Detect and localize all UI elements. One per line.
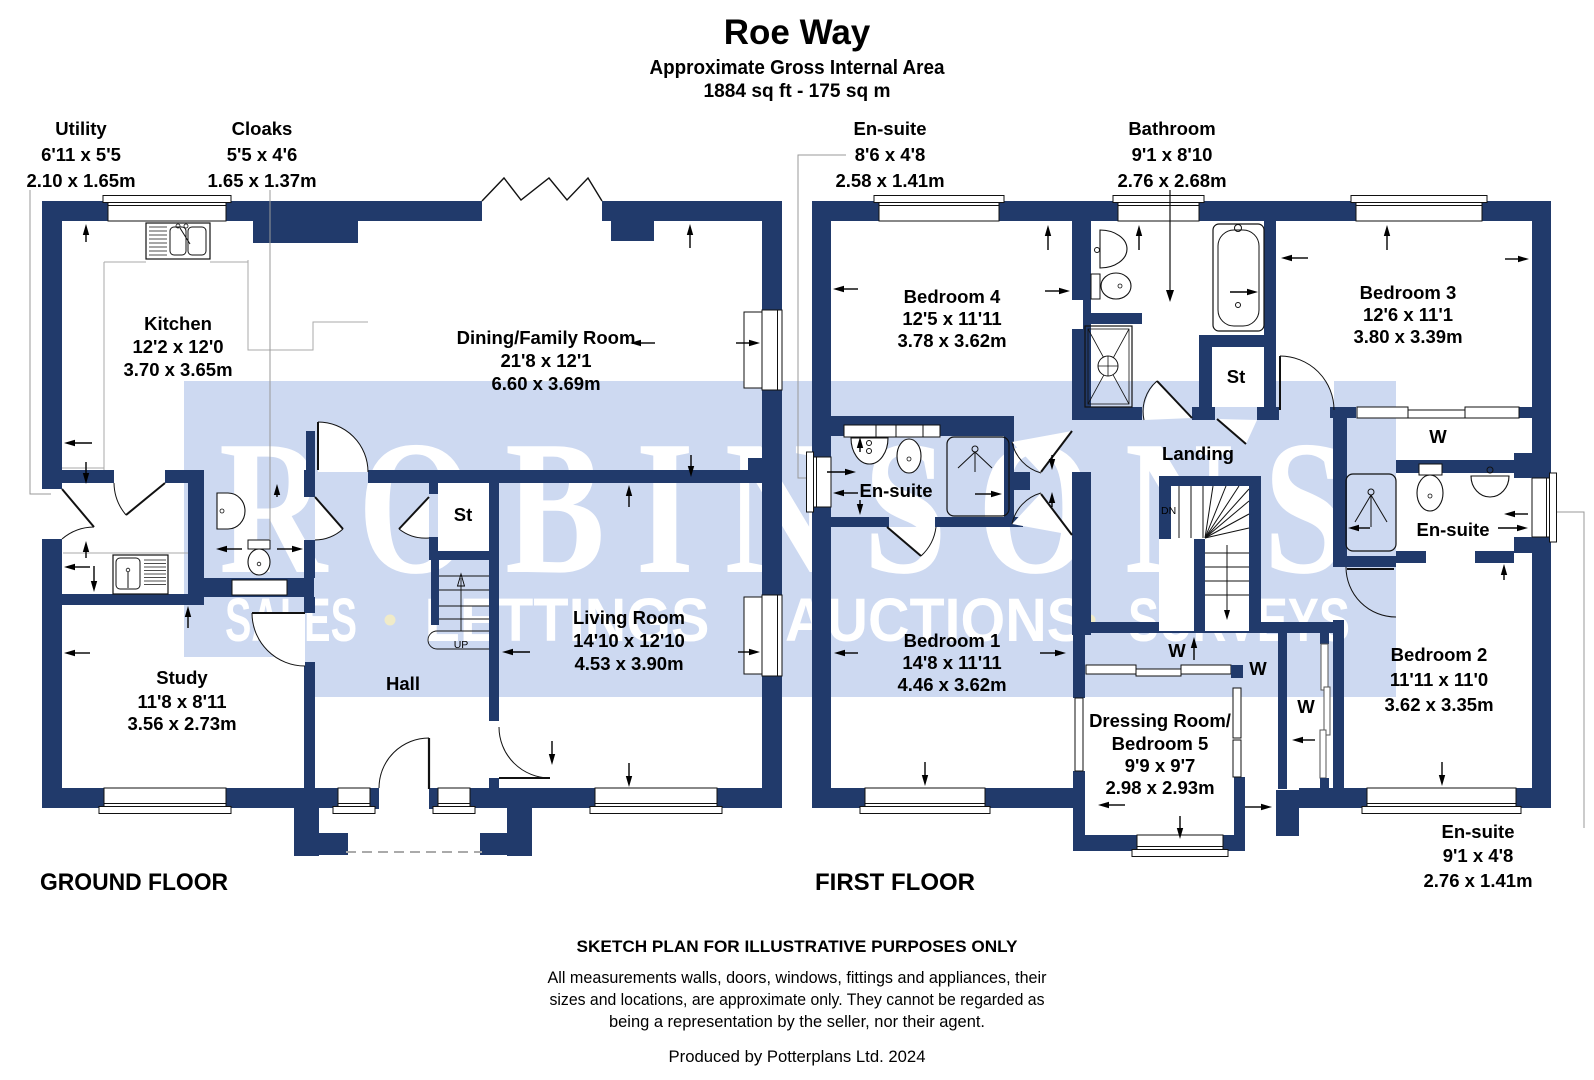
svg-text:Roe Way: Roe Way: [724, 13, 871, 52]
svg-text:4.53 x 3.90m: 4.53 x 3.90m: [574, 653, 683, 674]
svg-text:12'6 x 11'1: 12'6 x 11'1: [1363, 304, 1453, 325]
svg-text:5'5 x 4'6: 5'5 x 4'6: [227, 144, 298, 165]
svg-text:En-suite: En-suite: [1442, 821, 1515, 842]
svg-text:11'11 x 11'0: 11'11 x 11'0: [1390, 669, 1488, 690]
svg-text:St: St: [1227, 366, 1246, 387]
svg-text:1884 sq ft - 175 sq m: 1884 sq ft - 175 sq m: [704, 81, 891, 102]
svg-text:9'1 x 8'10: 9'1 x 8'10: [1132, 144, 1213, 165]
svg-text:2.58 x 1.41m: 2.58 x 1.41m: [835, 170, 944, 191]
svg-text:3.70 x 3.65m: 3.70 x 3.65m: [123, 359, 232, 380]
svg-text:3.80 x 3.39m: 3.80 x 3.39m: [1353, 326, 1462, 347]
svg-text:En-suite: En-suite: [860, 480, 933, 501]
svg-text:W: W: [1297, 696, 1315, 717]
svg-text:6'11 x 5'5: 6'11 x 5'5: [41, 144, 121, 165]
svg-text:Approximate Gross Internal Are: Approximate Gross Internal Area: [650, 57, 946, 79]
svg-text:Bathroom: Bathroom: [1128, 118, 1215, 139]
svg-text:2.98 x 2.93m: 2.98 x 2.93m: [1105, 777, 1214, 798]
svg-text:sizes and locations, are appro: sizes and locations, are approximate onl…: [550, 991, 1045, 1009]
svg-text:Kitchen: Kitchen: [144, 313, 212, 334]
svg-text:Dressing Room/: Dressing Room/: [1089, 710, 1231, 731]
svg-text:11'8 x 8'11: 11'8 x 8'11: [137, 691, 226, 712]
svg-text:St: St: [454, 504, 473, 525]
svg-text:Bedroom 2: Bedroom 2: [1391, 644, 1488, 665]
svg-text:14'10 x 12'10: 14'10 x 12'10: [573, 630, 685, 651]
svg-text:UP: UP: [454, 639, 469, 651]
svg-text:W: W: [1429, 426, 1447, 447]
svg-text:21'8 x 12'1: 21'8 x 12'1: [500, 350, 591, 371]
svg-text:En-suite: En-suite: [1417, 519, 1490, 540]
svg-text:SKETCH PLAN FOR ILLUSTRATIVE P: SKETCH PLAN FOR ILLUSTRATIVE PURPOSES ON…: [577, 937, 1019, 956]
svg-text:being a representation by the: being a representation by the seller, no…: [609, 1013, 985, 1031]
svg-text:2.76 x 1.41m: 2.76 x 1.41m: [1423, 870, 1532, 891]
svg-text:En-suite: En-suite: [854, 118, 927, 139]
svg-text:Hall: Hall: [386, 673, 420, 694]
svg-text:1.65 x 1.37m: 1.65 x 1.37m: [207, 170, 316, 191]
svg-text:All measurements walls, doors,: All measurements walls, doors, windows, …: [548, 969, 1047, 987]
svg-text:9'9 x 9'7: 9'9 x 9'7: [1125, 755, 1196, 776]
svg-text:Bedroom 4: Bedroom 4: [904, 286, 1001, 307]
svg-text:3.62 x 3.35m: 3.62 x 3.35m: [1384, 694, 1493, 715]
svg-text:Bedroom 3: Bedroom 3: [1360, 282, 1457, 303]
svg-text:12'5 x 11'11: 12'5 x 11'11: [902, 308, 1001, 329]
svg-text:Produced by Potterplans Ltd. 2: Produced by Potterplans Ltd. 2024: [669, 1047, 926, 1066]
svg-text:GROUND FLOOR: GROUND FLOOR: [40, 869, 228, 896]
svg-text:3.56 x 2.73m: 3.56 x 2.73m: [127, 713, 236, 734]
svg-text:Bedroom 5: Bedroom 5: [1112, 733, 1209, 754]
svg-text:Landing: Landing: [1162, 443, 1234, 464]
svg-text:12'2 x 12'0: 12'2 x 12'0: [132, 336, 223, 357]
svg-text:14'8 x 11'11: 14'8 x 11'11: [902, 652, 1001, 673]
svg-text:6.60 x 3.69m: 6.60 x 3.69m: [491, 373, 600, 394]
svg-text:2.10 x 1.65m: 2.10 x 1.65m: [26, 170, 135, 191]
svg-text:DN: DN: [1161, 505, 1176, 517]
svg-text:W: W: [1249, 658, 1267, 679]
svg-text:FIRST FLOOR: FIRST FLOOR: [815, 869, 975, 896]
svg-text:Bedroom 1: Bedroom 1: [904, 630, 1001, 651]
svg-text:4.46 x 3.62m: 4.46 x 3.62m: [897, 674, 1006, 695]
svg-text:9'1 x 4'8: 9'1 x 4'8: [1443, 845, 1514, 866]
svg-text:Study: Study: [156, 667, 208, 688]
svg-text:W: W: [1168, 640, 1186, 661]
svg-text:Dining/Family Room: Dining/Family Room: [457, 327, 636, 348]
svg-text:2.76 x 2.68m: 2.76 x 2.68m: [1117, 170, 1226, 191]
svg-text:Living Room: Living Room: [573, 607, 685, 628]
svg-text:Utility: Utility: [55, 118, 107, 139]
svg-text:8'6 x 4'8: 8'6 x 4'8: [855, 144, 926, 165]
svg-text:3.78 x 3.62m: 3.78 x 3.62m: [897, 330, 1006, 351]
svg-text:Cloaks: Cloaks: [232, 118, 293, 139]
